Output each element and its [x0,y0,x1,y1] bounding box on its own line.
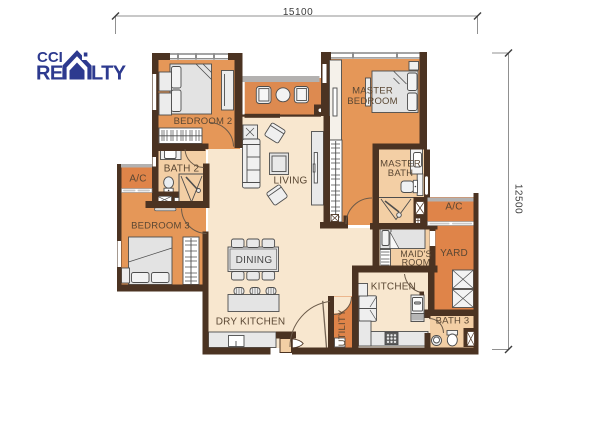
svg-text:UTILITY: UTILITY [337,309,348,346]
svg-text:LTY: LTY [91,63,127,85]
svg-text:BEDROOM: BEDROOM [347,96,398,107]
svg-text:DRY KITCHEN: DRY KITCHEN [216,316,286,327]
svg-text:RE: RE [36,63,63,85]
svg-text:BATH 2: BATH 2 [164,163,200,174]
svg-text:A/C: A/C [129,174,146,185]
svg-text:12500: 12500 [513,184,524,214]
svg-text:KITCHEN: KITCHEN [371,281,416,292]
svg-text:15100: 15100 [283,7,313,18]
svg-text:BEDROOM 3: BEDROOM 3 [131,221,190,232]
svg-text:BATH 3: BATH 3 [436,316,470,327]
svg-text:DINING: DINING [236,255,273,266]
svg-text:ROOM: ROOM [402,258,431,268]
svg-text:LIVING: LIVING [274,176,308,187]
svg-text:BATH: BATH [388,168,413,179]
svg-text:A/C: A/C [445,202,462,213]
svg-text:BEDROOM 2: BEDROOM 2 [174,116,233,127]
svg-text:YARD: YARD [440,248,468,259]
